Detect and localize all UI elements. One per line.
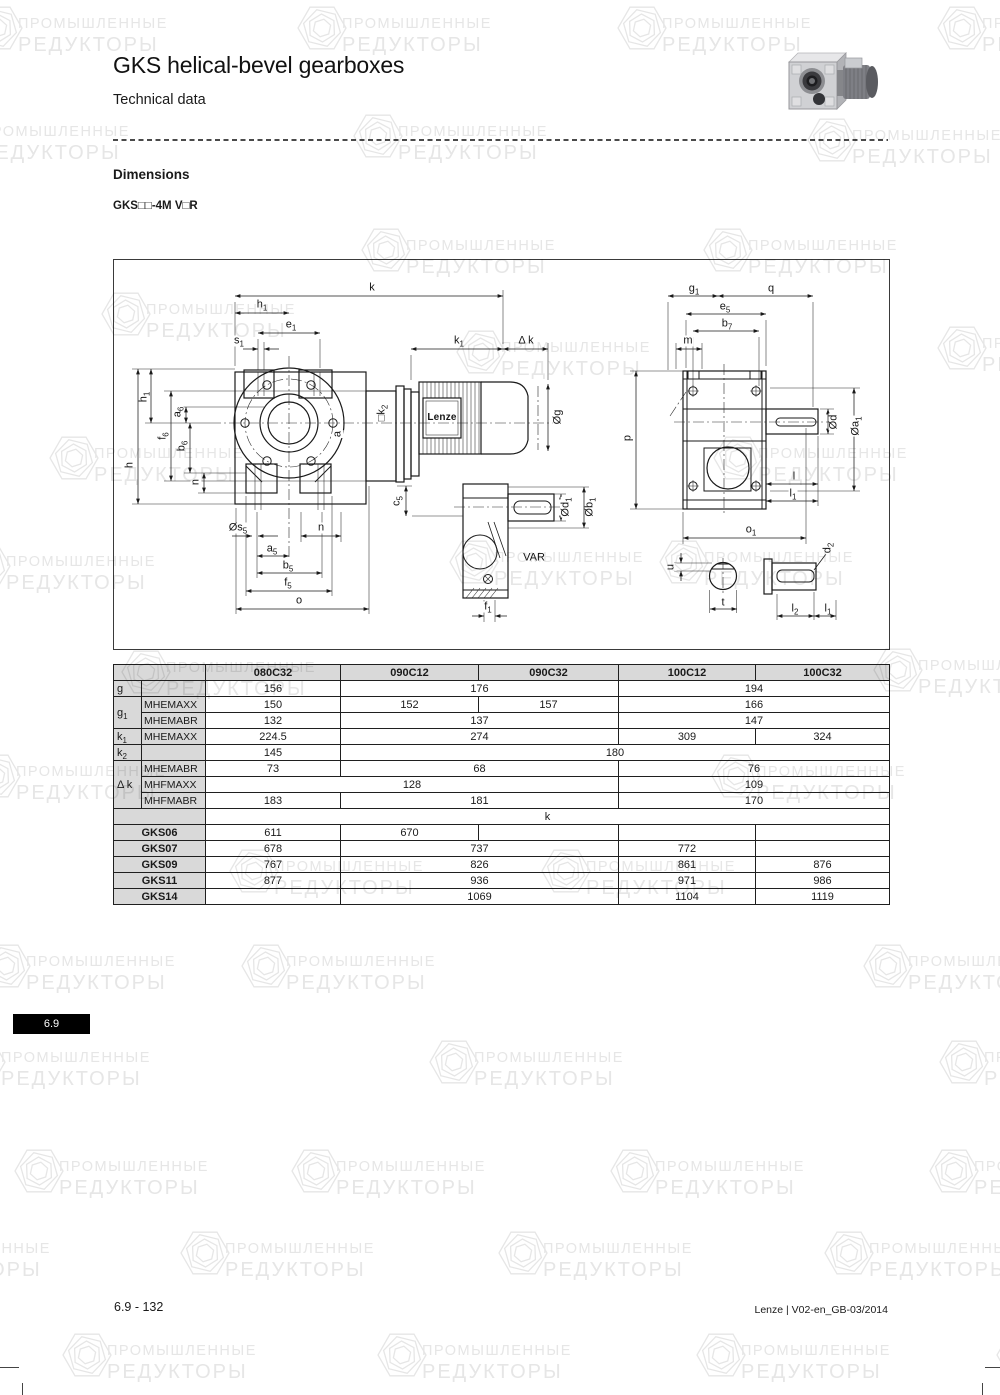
table-cell: MHEMAXX (142, 729, 206, 745)
watermark: ПРОМЫШЛЕННЫЕРЕДУКТОРЫ (240, 938, 436, 994)
watermark: ПРОМЫШЛЕННЫЕРЕДУКТОРЫ (995, 1327, 1000, 1383)
dim-label-d1: Ød1 (561, 496, 572, 517)
table-cell: 128 (206, 777, 619, 793)
table-cell: 772 (619, 841, 756, 857)
table-row: GKS07678737772 (114, 841, 890, 857)
dim-label-u: u (666, 563, 677, 571)
table-cell (114, 809, 206, 825)
table-cell: 1069 (341, 889, 619, 905)
column-header: 080C32 (206, 665, 341, 681)
watermark-text: ПРОМЫШЛЕННЫЕРЕДУКТОРЫ (59, 1158, 209, 1199)
dim-label-e1: e1 (285, 320, 298, 331)
column-header: 090C12 (341, 665, 479, 681)
table-cell (756, 825, 890, 841)
dim-label-t: t (720, 598, 725, 609)
table-row: MHEMABR132137147 (114, 713, 890, 729)
hexagon-logo-icon (296, 0, 348, 56)
watermark: ПРОМЫШЛЕННЫЕРЕДУКТОРЫ (928, 1143, 1000, 1199)
watermark: ПРОМЫШЛЕННЫЕРЕДУКТОРЫ (13, 1143, 209, 1199)
watermark: ПРОМЫШЛЕННЫЕРЕДУКТОРЫ (0, 1225, 51, 1281)
hexagon-logo-icon (995, 1327, 1000, 1383)
watermark: ПРОМЫШЛЕННЫЕРЕДУКТОРЫ (290, 1143, 486, 1199)
footer-document-id: Lenze | V02-en_GB-03/2014 (755, 1304, 889, 1316)
dim-label-l1: l1 (824, 604, 833, 615)
table-cell: 152 (341, 697, 479, 713)
dim-label-o: o (295, 596, 303, 607)
watermark-text: ПРОМЫШЛЕННЫЕРЕДУКТОРЫ (982, 15, 1000, 56)
hexagon-logo-icon (862, 938, 914, 994)
hexagon-logo-icon (179, 1225, 231, 1281)
table-cell: MHEMAXX (142, 697, 206, 713)
dimensions-table: 080C32090C12090C32100C12100C32g156176194… (113, 664, 890, 905)
watermark: ПРОМЫШЛЕННЫЕРЕДУКТОРЫ (179, 1225, 375, 1281)
watermark: ПРОМЫШЛЕННЫЕРЕДУКТОРЫ (695, 1327, 891, 1383)
dim-label-g1: g1 (688, 284, 701, 295)
column-header: 100C12 (619, 665, 756, 681)
table-cell: 166 (619, 697, 890, 713)
dim-label-k1: k1 (453, 336, 465, 347)
hexagon-logo-icon (240, 938, 292, 994)
table-cell: 145 (206, 745, 341, 761)
watermark-text: ПРОМЫШЛЕННЫЕРЕДУКТОРЫ (0, 1240, 51, 1281)
watermark-text: ПРОМЫШЛЕННЫЕРЕДУКТОРЫ (0, 123, 130, 164)
watermark-text: ПРОМЫШЛЕННЫЕРЕДУКТОРЫ (741, 1342, 891, 1383)
hexagon-logo-icon (497, 1225, 549, 1281)
table-cell: GKS11 (114, 873, 206, 889)
watermark-text: ПРОМЫШЛЕННЫЕРЕДУКТОРЫ (422, 1342, 572, 1383)
table-row: MHFMAXX128109 (114, 777, 890, 793)
watermark: ПРОМЫШЛЕННЫЕРЕДУКТОРЫ (497, 1225, 693, 1281)
table-cell: 678 (206, 841, 341, 857)
hexagon-logo-icon (290, 1143, 342, 1199)
watermark: ПРОМЫШЛЕННЫЕРЕДУКТОРЫ (296, 0, 492, 56)
column-header: 090C32 (479, 665, 619, 681)
watermark: ПРОМЫШЛЕННЫЕРЕДУКТОРЫ (936, 0, 1000, 56)
table-row: k1MHEMAXX224.5274309324 (114, 729, 890, 745)
table-row: g156176194 (114, 681, 890, 697)
table-cell: GKS14 (114, 889, 206, 905)
watermark-text: ПРОМЫШЛЕННЫЕРЕДУКТОРЫ (225, 1240, 375, 1281)
dim-label-n: n (317, 523, 325, 534)
table-cell (142, 745, 206, 761)
table-cell: 936 (341, 873, 619, 889)
watermark-text: ПРОМЫШЛЕННЫЕРЕДУКТОРЫ (107, 1342, 257, 1383)
watermark: ПРОМЫШЛЕННЫЕРЕДУКТОРЫ (0, 1034, 151, 1090)
dim-label-d2: d2 (823, 542, 834, 555)
watermark-text: ПРОМЫШЛЕННЫЕРЕДУКТОРЫ (918, 657, 1000, 698)
hexagon-logo-icon (0, 938, 32, 994)
watermark: ПРОМЫШЛЕННЫЕРЕДУКТОРЫ (938, 1034, 1000, 1090)
table-cell: GKS09 (114, 857, 206, 873)
watermark-text: ПРОМЫШЛЕННЫЕРЕДУКТОРЫ (398, 123, 548, 164)
table-row: k (114, 809, 890, 825)
table-cell: 73 (206, 761, 341, 777)
footer-page-number: 6.9 - 132 (114, 1300, 163, 1314)
dim-label-l2: l2 (791, 604, 800, 615)
dim-label-f1: f1 (483, 602, 493, 613)
table-cell: 826 (341, 857, 619, 873)
dim-label-s1: s1 (233, 336, 245, 347)
watermark-text: ПРОМЫШЛЕННЫЕРЕДУКТОРЫ (655, 1158, 805, 1199)
watermark-text: ПРОМЫШЛЕННЫЕРЕДУКТОРЫ (984, 1049, 1000, 1090)
table-cell: 132 (206, 713, 341, 729)
hexagon-logo-icon (13, 1143, 65, 1199)
watermark-text: ПРОМЫШЛЕННЫЕРЕДУКТОРЫ (543, 1240, 693, 1281)
table-cell: k2 (114, 745, 142, 761)
table-cell: 876 (756, 857, 890, 873)
hexagon-logo-icon (0, 1034, 7, 1090)
dim-label-Lenze: Lenze (426, 413, 457, 423)
watermark: ПРОМЫШЛЕННЫЕРЕДУКТОРЫ (0, 0, 168, 56)
dim-label-g: Øg (553, 409, 564, 426)
dim-label-a5: a5 (266, 544, 279, 555)
watermark-text: ПРОМЫШЛЕННЫЕРЕДУКТОРЫ (26, 953, 176, 994)
watermark-text: ПРОМЫШЛЕННЫЕРЕДУКТОРЫ (974, 1158, 1000, 1199)
watermark: ПРОМЫШЛЕННЫЕРЕДУКТОРЫ (616, 0, 812, 56)
watermark: ПРОМЫШЛЕННЫЕРЕДУКТОРЫ (862, 938, 1000, 994)
dim-label-a6: a6 (173, 406, 184, 419)
watermark-text: ПРОМЫШЛЕННЫЕРЕДУКТОРЫ (1, 1049, 151, 1090)
watermark-text: ПРОМЫШЛЕННЫЕРЕДУКТОРЫ (342, 15, 492, 56)
page-title: GKS helical-bevel gearboxes (113, 52, 404, 79)
table-cell: 194 (619, 681, 890, 697)
dim-label-h1: h1 (139, 391, 150, 404)
hexagon-logo-icon (428, 1034, 480, 1090)
watermark: ПРОМЫШЛЕННЫЕРЕДУКТОРЫ (428, 1034, 624, 1090)
table-cell: 1119 (756, 889, 890, 905)
watermark: ПРОМЫШЛЕННЫЕРЕДУКТОРЫ (609, 1143, 805, 1199)
crop-mark (985, 1367, 1000, 1368)
table-cell: 670 (341, 825, 479, 841)
table-row: 080C32090C12090C32100C12100C32 (114, 665, 890, 681)
dim-label-h: h (125, 461, 136, 469)
crop-mark (22, 1383, 23, 1395)
watermark: ПРОМЫШЛЕННЫЕРЕДУКТОРЫ (61, 1327, 257, 1383)
table-cell: 76 (619, 761, 890, 777)
table-cell: 109 (619, 777, 890, 793)
dashed-divider (113, 139, 888, 141)
table-cell: g (114, 681, 142, 697)
gearbox-product-photo (785, 48, 885, 116)
column-header: 100C32 (756, 665, 890, 681)
hexagon-logo-icon (823, 1225, 875, 1281)
model-designation: GKS□□-4M V□R (113, 200, 198, 212)
dimension-drawing-panel: kh1e1s1k1Δ kØgh1a6f6b6hna□k2Øs5na5b5f5oc… (113, 259, 890, 650)
table-cell: 309 (619, 729, 756, 745)
watermark-text: ПРОМЫШЛЕННЫЕРЕДУКТОРЫ (908, 953, 1000, 994)
chapter-tab: 6.9 (13, 1014, 90, 1034)
watermark-text: ПРОМЫШЛЕННЫЕРЕДУКТОРЫ (336, 1158, 486, 1199)
dim-label-VAR: VAR (522, 553, 546, 564)
table-cell: 861 (619, 857, 756, 873)
hexagon-logo-icon (0, 538, 12, 594)
table-cell: 180 (341, 745, 890, 761)
table-cell: 1104 (619, 889, 756, 905)
watermark-text: ПРОМЫШЛЕННЫЕРЕДУКТОРЫ (18, 15, 168, 56)
table-row: MHFMABR183181170 (114, 793, 890, 809)
table-cell: 137 (341, 713, 619, 729)
table-cell (479, 825, 619, 841)
table-cell: MHEMABR (142, 761, 206, 777)
watermark-text: ПРОМЫШЛЕННЫЕРЕДУКТОРЫ (982, 335, 1000, 376)
table-cell: 181 (341, 793, 619, 809)
watermark: ПРОМЫШЛЕННЫЕРЕДУКТОРЫ (936, 320, 1000, 376)
table-row: g1MHEMAXX150152157166 (114, 697, 890, 713)
table-cell: 176 (341, 681, 619, 697)
dim-label-s5: Øs5 (228, 523, 249, 534)
hexagon-logo-icon (928, 1143, 980, 1199)
table-cell (142, 681, 206, 697)
table-cell: 971 (619, 873, 756, 889)
watermark-text: ПРОМЫШЛЕННЫЕРЕДУКТОРЫ (852, 127, 1000, 168)
table-cell: k1 (114, 729, 142, 745)
page-subtitle: Technical data (113, 92, 206, 108)
watermark-text: ПРОМЫШЛЕННЫЕРЕДУКТОРЫ (474, 1049, 624, 1090)
table-cell (206, 889, 341, 905)
table-cell: 986 (756, 873, 890, 889)
table-cell: 224.5 (206, 729, 341, 745)
table-cell: 767 (206, 857, 341, 873)
watermark-text: ПРОМЫШЛЕННЫЕРЕДУКТОРЫ (286, 953, 436, 994)
hexagon-logo-icon (609, 1143, 661, 1199)
dim-label-f5: f5 (283, 578, 293, 589)
dim-label-n: n (191, 478, 202, 486)
table-cell: 156 (206, 681, 341, 697)
dim-label-e5: e5 (719, 302, 732, 313)
hexagon-logo-icon (938, 1034, 990, 1090)
table-cell: 170 (619, 793, 890, 809)
dim-label-b5: b5 (282, 561, 295, 572)
hexagon-logo-icon (352, 108, 404, 164)
table-cell: MHFMAXX (142, 777, 206, 793)
dim-label-a1: Øa1 (851, 415, 862, 436)
hexagon-logo-icon (376, 1327, 428, 1383)
table-cell: Δ k (114, 761, 142, 809)
datasheet-page: GKS helical-bevel gearboxes Technical da… (0, 0, 1000, 1395)
dim-label-d: Ød (829, 414, 840, 431)
column-header (114, 665, 206, 681)
dim-label-m: m (682, 336, 693, 347)
table-cell: 68 (341, 761, 619, 777)
dim-label-l1: l1 (789, 489, 798, 500)
table-row: GKS14106911041119 (114, 889, 890, 905)
table-cell: 150 (206, 697, 341, 713)
dim-label-k: Δ k (517, 336, 534, 347)
watermark-text: ПРОМЫШЛЕННЫЕРЕДУКТОРЫ (869, 1240, 1000, 1281)
dim-label-c5: c5 (392, 495, 403, 507)
dim-label-b7: b7 (721, 319, 734, 330)
dim-label-a: a (333, 430, 344, 438)
dim-label-h1: h1 (256, 300, 269, 311)
dim-label-q: q (767, 284, 775, 295)
dim-label-b1: Øb1 (585, 496, 596, 517)
dimension-labels-layer: kh1e1s1k1Δ kØgh1a6f6b6hna□k2Øs5na5b5f5oc… (114, 260, 889, 649)
hexagon-logo-icon (0, 0, 24, 56)
dim-label-f6: f6 (158, 431, 169, 441)
hexagon-logo-icon (0, 748, 22, 804)
dim-label-b6: b6 (177, 440, 188, 453)
table-row: GKS11877936971986 (114, 873, 890, 889)
watermark: ПРОМЫШЛЕННЫЕРЕДУКТОРЫ (0, 938, 176, 994)
table-cell: g1 (114, 697, 142, 729)
table-cell: MHEMABR (142, 713, 206, 729)
table-cell (619, 825, 756, 841)
hexagon-logo-icon (936, 0, 988, 56)
hexagon-logo-icon (695, 1327, 747, 1383)
crop-mark (982, 1383, 983, 1395)
dim-label-k2: □k2 (377, 404, 388, 423)
table-cell: 737 (341, 841, 619, 857)
table-cell: 147 (619, 713, 890, 729)
table-row: Δ kMHEMABR736876 (114, 761, 890, 777)
table-cell: k (206, 809, 890, 825)
table-cell: 611 (206, 825, 341, 841)
table-row: GKS06611670 (114, 825, 890, 841)
table-cell: GKS07 (114, 841, 206, 857)
table-row: GKS09767826861876 (114, 857, 890, 873)
table-cell: 324 (756, 729, 890, 745)
watermark: ПРОМЫШЛЕННЫЕРЕДУКТОРЫ (872, 642, 1000, 698)
dim-label-o1: o1 (745, 525, 758, 536)
watermark: ПРОМЫШЛЕННЫЕРЕДУКТОРЫ (376, 1327, 572, 1383)
table-cell: 183 (206, 793, 341, 809)
table-cell: 274 (341, 729, 619, 745)
table-row: k2145180 (114, 745, 890, 761)
crop-mark (0, 1367, 19, 1368)
watermark: ПРОМЫШЛЕННЫЕРЕДУКТОРЫ (0, 108, 130, 164)
hexagon-logo-icon (616, 0, 668, 56)
table-cell (756, 841, 890, 857)
watermark: ПРОМЫШЛЕННЫЕРЕДУКТОРЫ (823, 1225, 1000, 1281)
section-heading: Dimensions (113, 167, 190, 182)
hexagon-logo-icon (936, 320, 988, 376)
hexagon-logo-icon (48, 430, 100, 486)
dim-label-p: p (623, 434, 634, 442)
table-cell: 877 (206, 873, 341, 889)
table-cell: MHFMABR (142, 793, 206, 809)
watermark: ПРОМЫШЛЕННЫЕРЕДУКТОРЫ (352, 108, 548, 164)
table-cell: GKS06 (114, 825, 206, 841)
dim-label-l: l (792, 472, 796, 483)
table-cell: 157 (479, 697, 619, 713)
hexagon-logo-icon (61, 1327, 113, 1383)
dim-label-k: k (368, 283, 376, 294)
